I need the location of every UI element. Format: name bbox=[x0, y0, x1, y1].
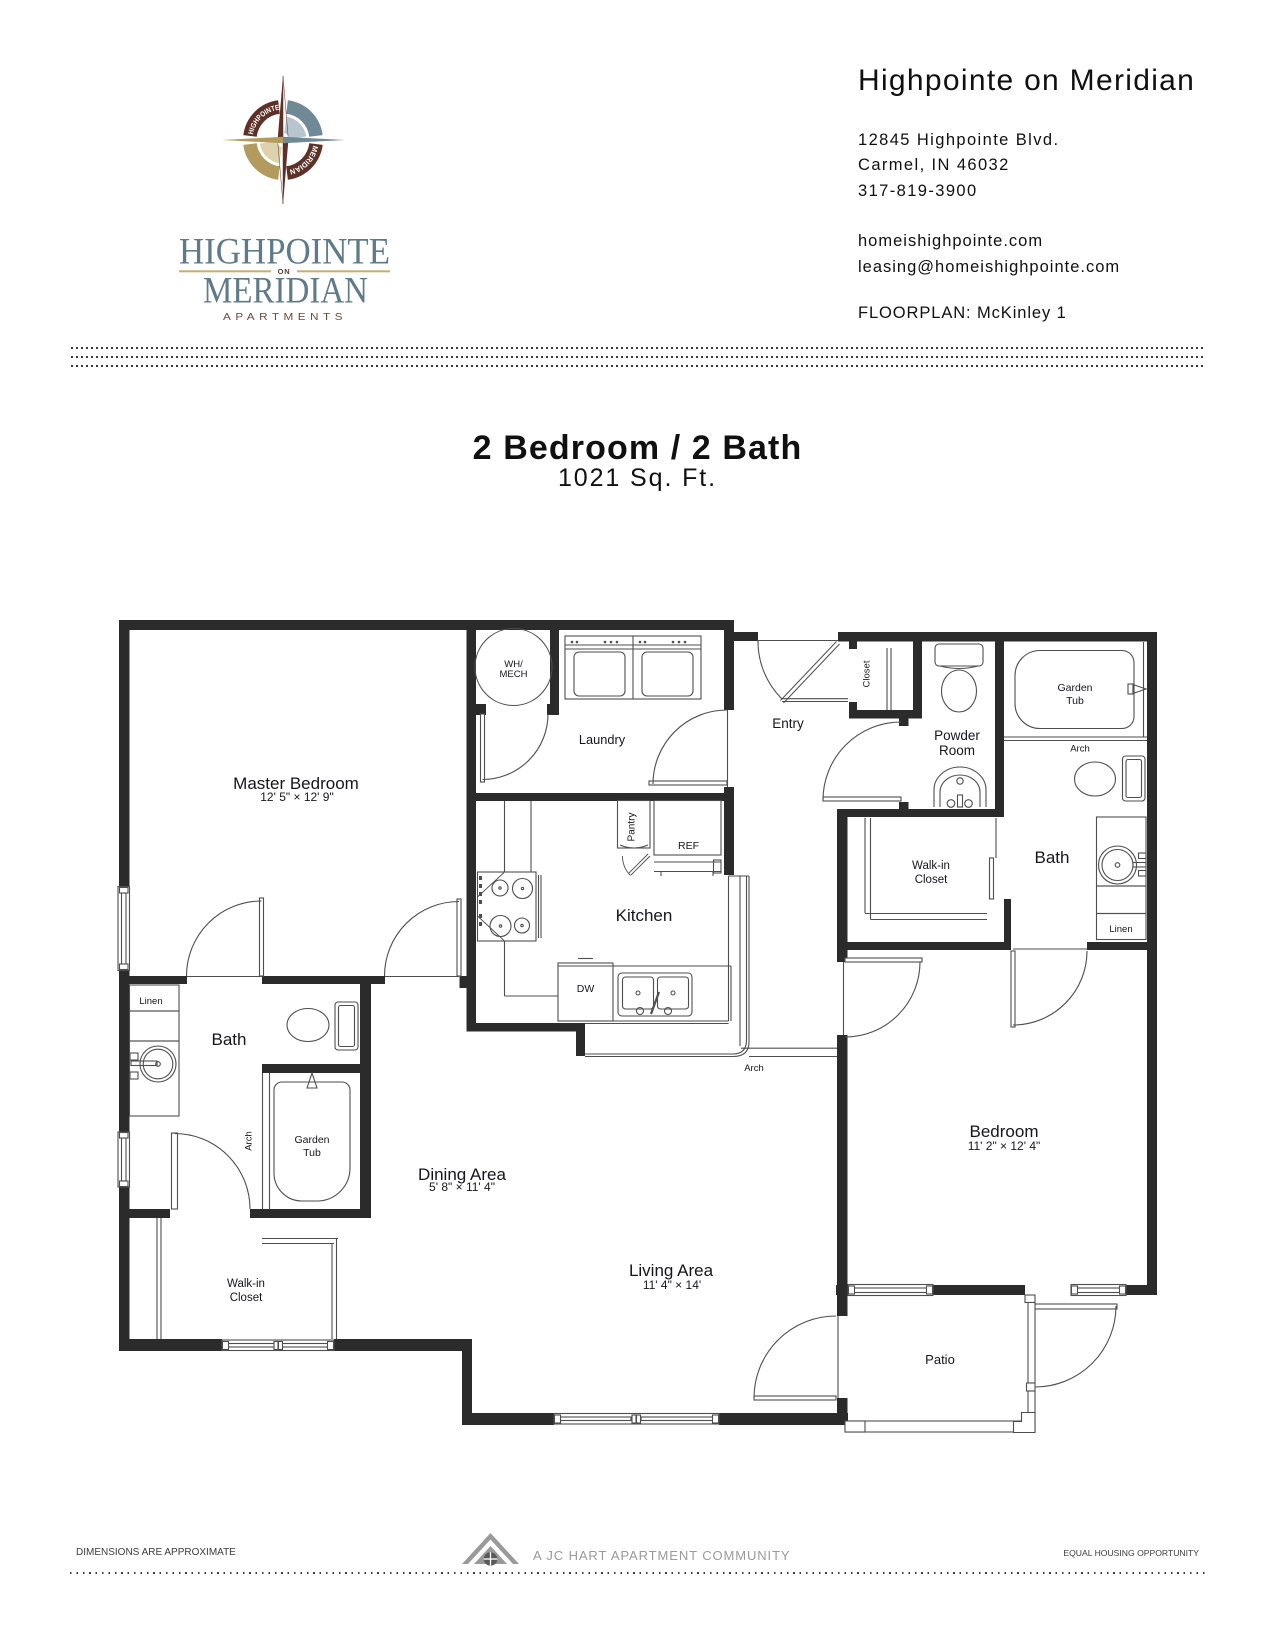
svg-text:5' 8" × 11' 4": 5' 8" × 11' 4" bbox=[429, 1180, 495, 1194]
svg-text:12' 5" × 12' 9": 12' 5" × 12' 9" bbox=[260, 790, 334, 804]
svg-text:Closet: Closet bbox=[862, 660, 873, 687]
svg-text:Entry: Entry bbox=[772, 716, 804, 731]
svg-text:Closet: Closet bbox=[915, 874, 948, 886]
svg-text:Patio: Patio bbox=[925, 1352, 955, 1367]
svg-text:11' 2" × 12' 4": 11' 2" × 12' 4" bbox=[968, 1139, 1041, 1153]
svg-text:Tub: Tub bbox=[303, 1147, 321, 1159]
svg-text:Tub: Tub bbox=[1066, 695, 1084, 707]
svg-text:Walk-in: Walk-in bbox=[227, 1278, 265, 1290]
svg-text:Powder: Powder bbox=[934, 728, 980, 743]
svg-text:Garden: Garden bbox=[1057, 682, 1092, 694]
svg-text:Room: Room bbox=[939, 743, 975, 758]
svg-text:Laundry: Laundry bbox=[579, 732, 626, 747]
svg-text:Bath: Bath bbox=[1035, 848, 1070, 867]
svg-text:Arch: Arch bbox=[744, 1063, 764, 1074]
svg-text:Walk-in: Walk-in bbox=[912, 860, 950, 872]
svg-text:Linen: Linen bbox=[139, 996, 162, 1007]
svg-text:DW: DW bbox=[577, 983, 595, 995]
svg-text:11' 4" × 14': 11' 4" × 14' bbox=[643, 1278, 701, 1292]
svg-text:Pantry: Pantry bbox=[627, 813, 638, 842]
svg-text:Kitchen: Kitchen bbox=[616, 906, 673, 925]
svg-text:MECH: MECH bbox=[500, 669, 528, 680]
svg-text:Bath: Bath bbox=[212, 1030, 247, 1049]
svg-text:Arch: Arch bbox=[1070, 744, 1090, 755]
svg-text:Arch: Arch bbox=[244, 1131, 255, 1151]
svg-text:Garden: Garden bbox=[294, 1134, 329, 1146]
svg-text:Linen: Linen bbox=[1109, 924, 1132, 935]
svg-text:REF: REF bbox=[678, 840, 699, 852]
svg-text:Closet: Closet bbox=[230, 1292, 263, 1304]
